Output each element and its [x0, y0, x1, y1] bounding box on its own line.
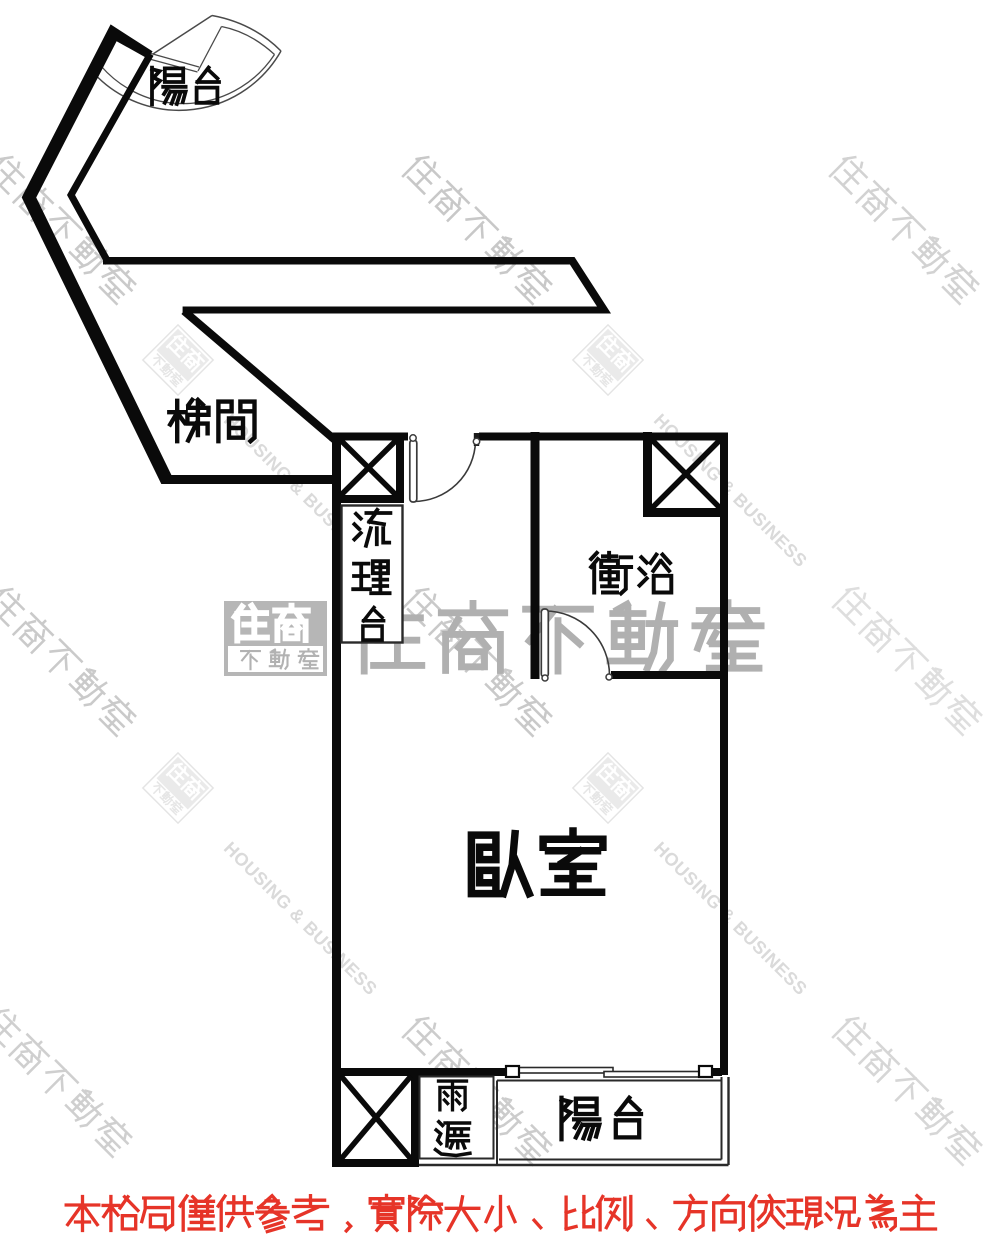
svg-text:HOUSING & BUSINESS: HOUSING & BUSINESS [220, 838, 381, 999]
svg-text:HOUSING & BUSINESS: HOUSING & BUSINESS [650, 838, 811, 999]
